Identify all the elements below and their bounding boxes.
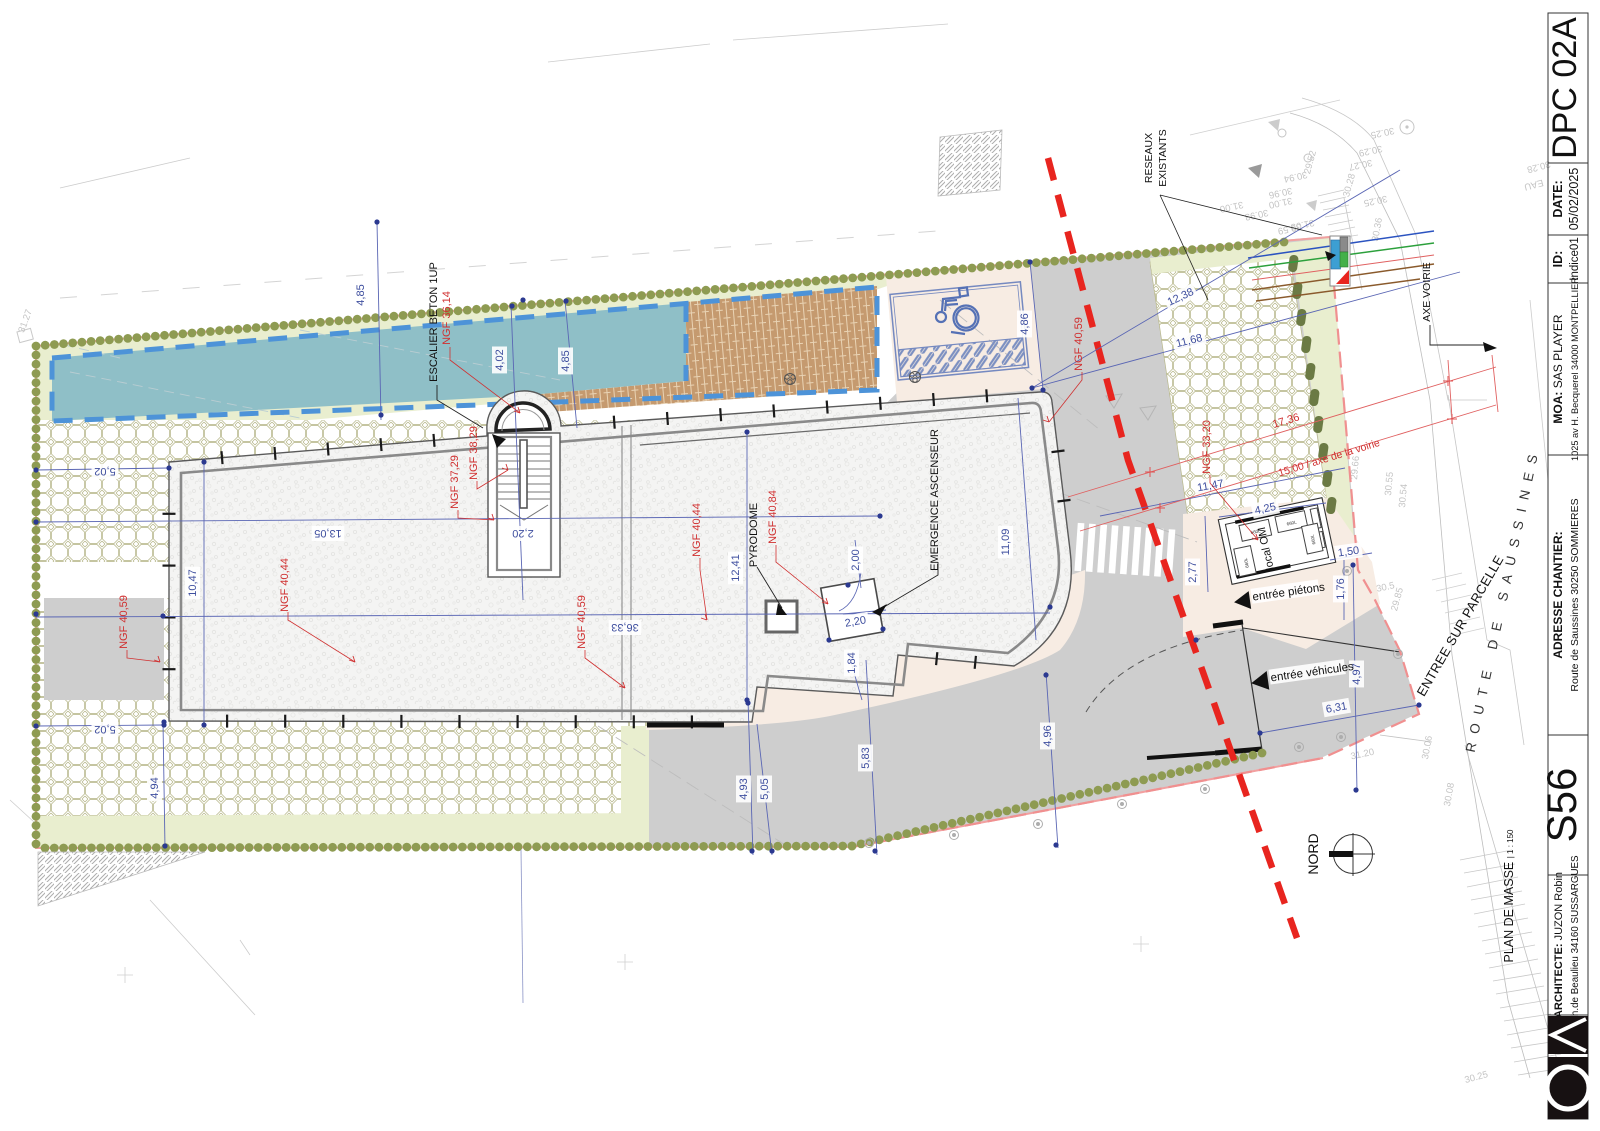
svg-text:10,47: 10,47 (187, 569, 199, 597)
svg-text:NGF 33,20: NGF 33,20 (1201, 420, 1213, 474)
svg-text:MOA: SAS PLAYER: MOA: SAS PLAYER (1551, 314, 1565, 423)
svg-text:30.54: 30.54 (1397, 483, 1410, 508)
svg-text:NGF 40,84: NGF 40,84 (767, 490, 779, 544)
svg-text:EMERGENCE ASCENSEUR: EMERGENCE ASCENSEUR (929, 429, 941, 571)
svg-text:05/02/2025: 05/02/2025 (1567, 168, 1581, 231)
svg-text:ID:: ID: (1551, 251, 1565, 268)
svg-text:36,33: 36,33 (611, 621, 639, 633)
svg-text:4,94: 4,94 (149, 777, 161, 798)
svg-text:NGF 40,44: NGF 40,44 (691, 503, 703, 557)
svg-text:4,93: 4,93 (738, 778, 750, 799)
svg-text:DATE:: DATE: (1551, 180, 1565, 217)
svg-text:NGF 40,59: NGF 40,59 (1073, 317, 1085, 371)
svg-text:NGF 36,14: NGF 36,14 (441, 291, 453, 345)
svg-text:NGF 40,59: NGF 40,59 (576, 595, 588, 649)
svg-text:4,02: 4,02 (494, 349, 506, 370)
svg-text:NGF 40,44: NGF 40,44 (279, 558, 291, 612)
svg-text:5,05: 5,05 (759, 778, 771, 799)
svg-text:30.55: 30.55 (1383, 471, 1396, 496)
svg-text:AXE VOIRIE: AXE VOIRIE (1421, 262, 1433, 322)
svg-text:34 ch.de Beaulieu 34160 SUSSAR: 34 ch.de Beaulieu 34160 SUSSARGUES (1570, 855, 1581, 1035)
svg-text:12,41: 12,41 (730, 554, 742, 582)
svg-text:Indice01: Indice01 (1569, 237, 1581, 280)
svg-text:4,85: 4,85 (355, 284, 367, 305)
svg-text:NGF 38,29: NGF 38,29 (468, 426, 480, 480)
svg-text:5,02: 5,02 (94, 465, 115, 477)
svg-text:ARCHITECTE: JUZON Robin: ARCHITECTE: JUZON Robin (1553, 872, 1565, 1018)
svg-text:2,77: 2,77 (1187, 561, 1199, 582)
svg-text:2,00: 2,00 (850, 549, 862, 570)
svg-text:ADRESSE CHANTIER:: ADRESSE CHANTIER: (1551, 531, 1565, 658)
svg-text:4,85: 4,85 (560, 350, 572, 371)
svg-text:1025 av H. Becquerel 34000 MON: 1025 av H. Becquerel 34000 MONTPELLIER (1570, 277, 1580, 461)
svg-text:NGF 40,59: NGF 40,59 (118, 595, 130, 649)
svg-text:Route de Saussines 30250 SOMMI: Route de Saussines 30250 SOMMIERES (1569, 498, 1581, 691)
svg-text:EXISTANTS: EXISTANTS (1157, 129, 1169, 187)
svg-text:DPC 02A: DPC 02A (1546, 17, 1584, 159)
svg-text:5,83: 5,83 (860, 747, 872, 768)
svg-text:NORD: NORD (1305, 833, 1321, 874)
svg-text:1,84: 1,84 (846, 652, 858, 673)
svg-text:11,09: 11,09 (1000, 529, 1012, 556)
svg-text:PYRODOME: PYRODOME (748, 503, 760, 567)
svg-text:ESCALIER BETON 1UP: ESCALIER BETON 1UP (428, 262, 440, 382)
svg-text:4,96: 4,96 (1042, 725, 1054, 746)
svg-text:2,20: 2,20 (512, 527, 533, 539)
svg-text:5,02: 5,02 (94, 723, 115, 735)
svg-text:S56: S56 (1538, 768, 1585, 843)
svg-text:4,86: 4,86 (1019, 313, 1031, 334)
svg-text:13,05: 13,05 (314, 527, 342, 539)
svg-text:NGF 37,29: NGF 37,29 (449, 455, 461, 509)
svg-text:1,76: 1,76 (1335, 578, 1347, 599)
svg-text:RESEAUX: RESEAUX (1143, 133, 1155, 183)
